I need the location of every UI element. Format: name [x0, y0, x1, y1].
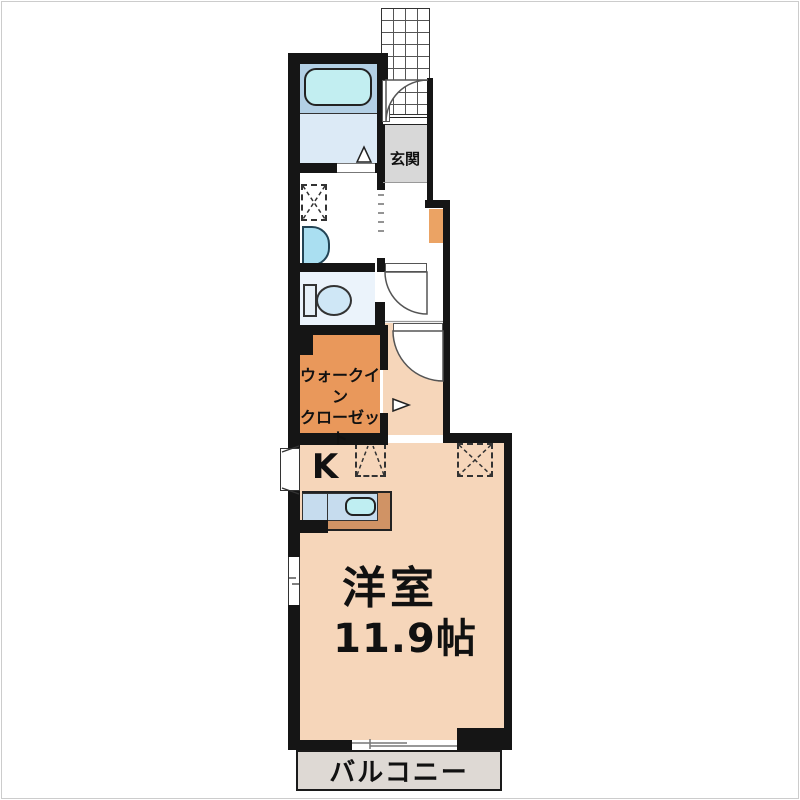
left-bay-window — [280, 448, 300, 491]
floor-plan: バルコニー 玄関 ウォークイン クローゼット K 洋室 — [0, 0, 800, 800]
bathroom-door-gap — [337, 163, 375, 173]
wall-top — [288, 53, 388, 64]
main-room-size: 11.9帖 — [295, 606, 515, 664]
wall-left-b — [288, 491, 300, 557]
wall-right-top — [427, 78, 433, 205]
wall-bottom-left — [288, 740, 352, 750]
entrance-label: 玄関 — [383, 148, 427, 169]
balcony-label: バルコニー — [329, 752, 468, 789]
kitchen-counter-divider — [327, 493, 328, 521]
toilet-tank — [303, 284, 317, 317]
wall-mid-horizontal — [443, 433, 512, 443]
main-room-door-leaf — [393, 323, 443, 332]
wall-toilet-right — [375, 302, 385, 325]
hallway-floor-upper — [383, 183, 427, 205]
wall-left-a — [288, 53, 300, 448]
closet-label: ウォークイン クローゼット — [300, 365, 380, 449]
closet-label-line1: ウォークイン — [300, 365, 380, 407]
refrigerator-space — [457, 443, 493, 477]
wall-right-lower — [504, 443, 512, 750]
balcony-sliding-window — [352, 740, 457, 749]
shoe-cabinet — [429, 209, 443, 243]
wall-bath-wash-left — [288, 163, 337, 173]
closet-label-line2: クローゼット — [300, 407, 380, 449]
washing-machine-space — [301, 184, 327, 221]
toilet-door-leaf — [385, 263, 427, 272]
closet-corner-notch — [300, 333, 313, 355]
wall-right-mid — [443, 205, 450, 435]
balcony: バルコニー — [296, 750, 502, 791]
toilet-bowl — [316, 285, 352, 316]
wall-wash-toilet — [288, 263, 375, 272]
corridor-floor — [383, 323, 443, 435]
entrance-step-line — [383, 182, 427, 183]
wall-kitchen-stub — [300, 520, 328, 533]
wall-closet-right-upper — [380, 325, 388, 370]
wall-bath-right-upper — [377, 53, 388, 80]
kitchen-label: K — [305, 447, 345, 487]
bathtub — [304, 68, 372, 106]
washroom-sliding-door — [377, 190, 385, 258]
wall-wash-right-lower — [377, 258, 385, 272]
entrance-door-leaf — [382, 80, 390, 122]
kitchen-sink — [345, 497, 376, 516]
bathroom-floor-lower — [300, 113, 377, 163]
